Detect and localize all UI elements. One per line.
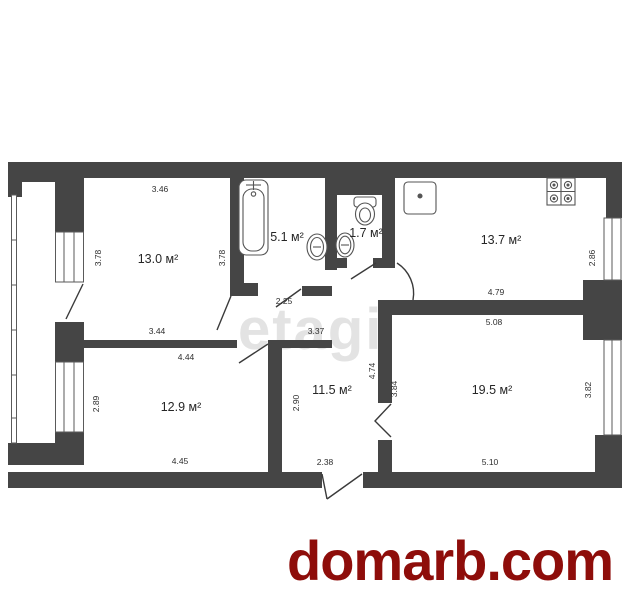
dimension-label: 4.45 <box>172 456 189 466</box>
bath-sink-icon <box>307 234 327 260</box>
door-leaf <box>375 404 391 437</box>
floor-plan: etagi <box>0 0 630 600</box>
wall <box>8 443 55 465</box>
wall <box>55 340 237 348</box>
wall <box>325 258 347 268</box>
doors <box>66 263 414 499</box>
dimension-label: 2.89 <box>91 396 101 413</box>
dimension-label: 4.79 <box>488 287 505 297</box>
wall <box>8 472 322 488</box>
door-leaf <box>327 474 362 499</box>
dimension-label: 3.82 <box>583 382 593 399</box>
door-leaf <box>66 284 83 319</box>
wall <box>268 348 282 472</box>
dimension-label: 3.78 <box>217 250 227 267</box>
balcony-window <box>56 362 84 432</box>
dimension-label: 3.46 <box>152 184 169 194</box>
fixtures <box>239 178 575 260</box>
wall <box>302 286 332 296</box>
door-leaf <box>351 263 376 279</box>
wall <box>55 178 84 232</box>
floor-plan-drawing <box>0 0 630 600</box>
wall <box>230 283 258 296</box>
room-area-label-room-19-5: 19.5 м² <box>472 383 513 397</box>
walls <box>8 162 622 488</box>
dimension-label: 5.08 <box>486 317 503 327</box>
room-area-label-wc: 1.7 м² <box>349 226 383 240</box>
kitchen-sink-icon <box>404 182 436 214</box>
dimension-label: 2.38 <box>317 457 334 467</box>
wall <box>363 472 622 488</box>
dimension-label: 3.37 <box>308 326 325 336</box>
door-leaf <box>217 296 231 330</box>
wall <box>373 258 395 268</box>
wall <box>583 280 622 340</box>
balcony-exterior-window <box>12 195 17 443</box>
wall <box>378 440 392 473</box>
wall <box>55 432 84 465</box>
dimension-label: 2.90 <box>291 395 301 412</box>
toilet-icon <box>354 197 376 225</box>
dimension-label: 4.74 <box>367 363 377 380</box>
wall <box>8 162 622 178</box>
door-leaf <box>239 344 268 363</box>
door-arc <box>397 263 414 300</box>
dimension-label: 3.84 <box>389 381 399 398</box>
balcony-window <box>56 232 84 282</box>
wall <box>595 435 622 488</box>
dimension-label: 3.78 <box>93 250 103 267</box>
wall <box>382 178 395 260</box>
dimension-label: 2.25 <box>276 296 293 306</box>
wall <box>606 178 622 218</box>
room-area-label-room-13-0: 13.0 м² <box>138 252 179 266</box>
room-area-label-room-12-9: 12.9 м² <box>161 400 202 414</box>
wall <box>268 340 332 348</box>
stove-icon <box>547 178 575 205</box>
room-area-label-hallway: 11.5 м² <box>312 383 352 397</box>
wall-notch <box>18 465 55 472</box>
dimension-label: 5.10 <box>482 457 499 467</box>
wall <box>378 300 583 315</box>
dimension-label: 4.44 <box>178 352 195 362</box>
wall <box>8 162 55 182</box>
site-watermark: domarb.com <box>287 528 613 593</box>
door-leaf <box>322 474 327 499</box>
dimension-label: 2.86 <box>587 250 597 267</box>
room-area-label-bathroom: 5.1 м² <box>270 230 304 244</box>
dimension-label: 3.44 <box>149 326 166 336</box>
room-area-label-kitchen: 13.7 м² <box>481 233 522 247</box>
bathtub-icon <box>239 180 268 255</box>
